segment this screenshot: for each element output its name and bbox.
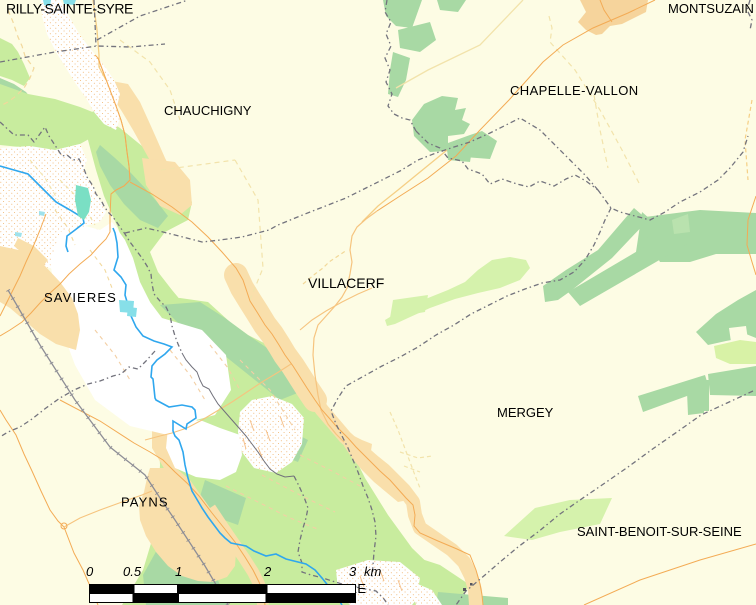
svg-text:VILLACERF: VILLACERF bbox=[308, 275, 384, 291]
svg-text:PAYNS: PAYNS bbox=[121, 495, 169, 510]
svg-text:MONTSUZAIN: MONTSUZAIN bbox=[668, 1, 754, 16]
svg-text:SAVIERES: SAVIERES bbox=[44, 290, 117, 305]
svg-text:0.5: 0.5 bbox=[123, 564, 142, 579]
svg-text:3: 3 bbox=[349, 564, 357, 579]
svg-text:km: km bbox=[364, 564, 382, 579]
svg-text:MERGEY: MERGEY bbox=[497, 405, 554, 420]
svg-text:CHAUCHIGNY: CHAUCHIGNY bbox=[164, 103, 252, 118]
svg-text:SAINT-BENOIT-SUR-SEINE: SAINT-BENOIT-SUR-SEINE bbox=[577, 524, 742, 539]
svg-text:1: 1 bbox=[175, 564, 182, 579]
svg-text:2: 2 bbox=[263, 564, 272, 579]
svg-text:0: 0 bbox=[86, 564, 94, 579]
svg-text:CHAPELLE-VALLON: CHAPELLE-VALLON bbox=[510, 83, 639, 98]
svg-text:RILLY-SAINTE-SYRE: RILLY-SAINTE-SYRE bbox=[6, 1, 133, 17]
